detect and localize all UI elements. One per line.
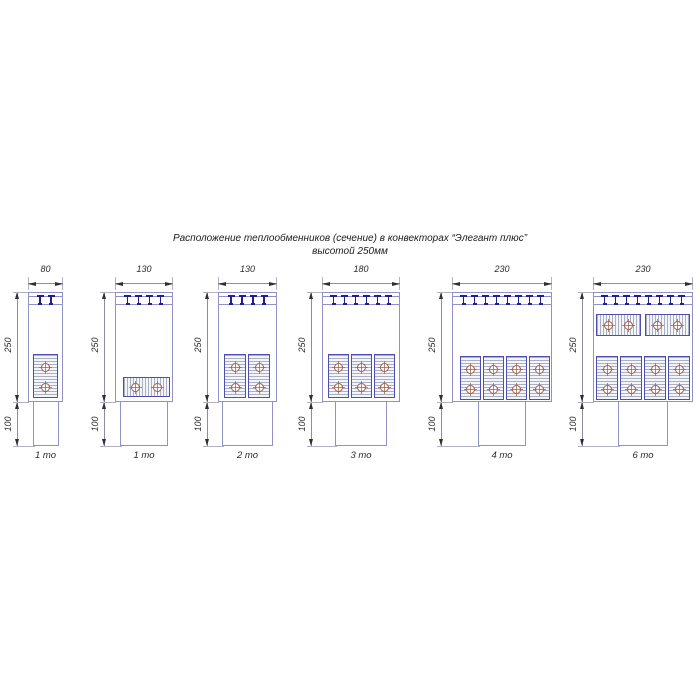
grille-clip-icon [157,295,164,305]
dim-arrow-left [593,282,601,286]
tube-circle [601,383,614,396]
grille-clip-icon [385,295,392,305]
dim-arrow-up [580,402,584,409]
width-dimension-label: 180 [336,264,386,274]
dim-arrow-up [15,292,19,299]
extension-line [307,446,337,447]
dim-arrow-down [205,439,209,446]
tube-circle [253,381,266,394]
tube-circle [464,383,477,396]
height-dimension-label: 250 [90,330,100,360]
tube-circle [625,383,638,396]
extension-line [100,446,122,447]
dim-arrow-down [580,439,584,446]
tube-circle [649,383,662,396]
grille-clip-icon [667,295,674,305]
tube-circle [378,361,391,374]
grille-clip-icon [135,295,142,305]
grille-clip-icon [37,295,44,305]
tube-circle [355,381,368,394]
dim-arrow-right [55,282,63,286]
extension-line [13,402,29,403]
extension-line [13,446,35,447]
tube-circle [673,363,686,376]
dim-arrow-up [102,402,106,409]
width-dimension-label: 230 [618,264,668,274]
width-dimension-label: 230 [477,264,527,274]
dim-arrow-down [580,395,584,402]
grille-clip-icon [515,295,522,305]
dim-arrow-down [205,395,209,402]
dimension-line-height [582,292,583,402]
grille-clip-icon [330,295,337,305]
tube-circle [602,319,615,332]
dimension-line-width [322,283,400,284]
extension-line [437,446,480,447]
dim-arrow-up [309,292,313,299]
grille-clip-icon [504,295,511,305]
tube-circle [229,361,242,374]
pedestal-dimension-label: 100 [90,409,100,439]
extension-line [307,292,323,293]
tube-circle [39,381,52,394]
extension-line [100,292,116,293]
grille-clip-icon [239,295,246,305]
dim-arrow-left [218,282,226,286]
pedestal-dimension-label: 100 [297,409,307,439]
grille-clip-icon [146,295,153,305]
dim-arrow-down [309,395,313,402]
dimension-line-height [311,292,312,402]
tube-circle [332,361,345,374]
dimension-line-width [452,283,552,284]
drawing-title: Расположение теплообменников (сечение) в… [20,232,680,258]
extension-line [203,292,219,293]
tube-circle [129,381,142,394]
height-dimension-label: 250 [297,330,307,360]
extension-line [203,446,224,447]
grille-line [28,296,63,297]
dim-arrow-right [269,282,277,286]
dim-arrow-down [439,395,443,402]
tube-circle [649,363,662,376]
dim-arrow-left [452,282,460,286]
dim-arrow-down [309,439,313,446]
dimension-line-height [207,292,208,402]
dim-arrow-up [580,292,584,299]
tube-circle [622,319,635,332]
extension-line [437,402,453,403]
dim-arrow-left [28,282,36,286]
pedestal-dimension-label: 100 [568,409,578,439]
pedestal-dimension-label: 100 [193,409,203,439]
dim-arrow-down [102,439,106,446]
width-dimension-label: 130 [119,264,169,274]
dim-arrow-right [165,282,173,286]
extension-line [100,402,116,403]
dim-arrow-up [309,402,313,409]
extension-line [307,402,323,403]
dim-arrow-right [392,282,400,286]
tube-circle [378,381,391,394]
height-dimension-label: 250 [3,330,13,360]
grille-line [28,304,63,305]
grille-clip-icon [460,295,467,305]
dim-arrow-down [15,439,19,446]
extension-line [578,402,594,403]
width-dimension-label: 130 [223,264,273,274]
dim-arrow-right [544,282,552,286]
pedestal [222,402,273,446]
dim-arrow-left [322,282,330,286]
tube-circle [533,383,546,396]
dim-arrow-up [102,292,106,299]
dimension-line-height [104,292,105,402]
dim-arrow-down [15,395,19,402]
figure-caption: 4 то [472,450,532,461]
extension-line [13,292,29,293]
grille-clip-icon [526,295,533,305]
extension-line [203,402,219,403]
extension-line [437,292,453,293]
grille-clip-icon [250,295,257,305]
grille-clip-icon [612,295,619,305]
grille-clip-icon [537,295,544,305]
tube-circle [487,383,500,396]
grille-clip-icon [678,295,685,305]
grille-clip-icon [623,295,630,305]
drawing-title-line2: высотой 250мм [20,245,680,258]
pedestal [335,402,387,446]
tube-circle [464,363,477,376]
tube-circle [487,363,500,376]
grille-clip-icon [645,295,652,305]
figure-caption: 2 то [218,450,278,461]
height-dimension-label: 250 [568,330,578,360]
height-dimension-label: 250 [427,330,437,360]
tube-circle [510,363,523,376]
grille-clip-icon [48,295,55,305]
dimension-line-height [441,292,442,402]
dimension-line-height [17,292,18,402]
tube-circle [229,381,242,394]
pedestal [120,402,168,446]
tube-circle [601,363,614,376]
dimension-line-width [593,283,693,284]
pedestal [478,402,526,446]
tube-circle [39,361,52,374]
grille-clip-icon [471,295,478,305]
tube-circle [625,363,638,376]
figure-caption: 1 то [16,450,76,461]
dim-arrow-up [15,402,19,409]
pedestal [618,402,668,446]
grille-clip-icon [482,295,489,305]
grille-clip-icon [228,295,235,305]
grille-clip-icon [656,295,663,305]
pedestal [33,402,59,446]
pedestal-dimension-label: 100 [3,409,13,439]
dim-arrow-up [205,292,209,299]
dim-arrow-right [685,282,693,286]
grille-clip-icon [374,295,381,305]
extension-line [578,446,620,447]
dim-arrow-up [205,402,209,409]
grille-clip-icon [363,295,370,305]
height-dimension-label: 250 [193,330,203,360]
tube-circle [671,319,684,332]
tube-circle [355,361,368,374]
grille-clip-icon [124,295,131,305]
dim-arrow-left [115,282,123,286]
grille-clip-icon [493,295,500,305]
tube-circle [533,363,546,376]
tube-circle [673,383,686,396]
grille-clip-icon [352,295,359,305]
figure-caption: 3 то [331,450,391,461]
dim-arrow-up [439,292,443,299]
grille-clip-icon [601,295,608,305]
grille-clip-icon [341,295,348,305]
tube-circle [151,381,164,394]
tube-circle [510,383,523,396]
grille-clip-icon [261,295,268,305]
extension-line [578,292,594,293]
figure-caption: 1 то [114,450,174,461]
grille-clip-icon [634,295,641,305]
dim-arrow-down [102,395,106,402]
width-dimension-label: 80 [21,264,71,274]
pedestal-dimension-label: 100 [427,409,437,439]
figure-caption: 6 то [613,450,673,461]
tube-circle [253,361,266,374]
dim-arrow-up [439,402,443,409]
tube-circle [332,381,345,394]
dim-arrow-down [439,439,443,446]
drawing-canvas: Расположение теплообменников (сечение) в… [0,0,700,700]
drawing-title-line1: Расположение теплообменников (сечение) в… [20,232,680,245]
tube-circle [651,319,664,332]
